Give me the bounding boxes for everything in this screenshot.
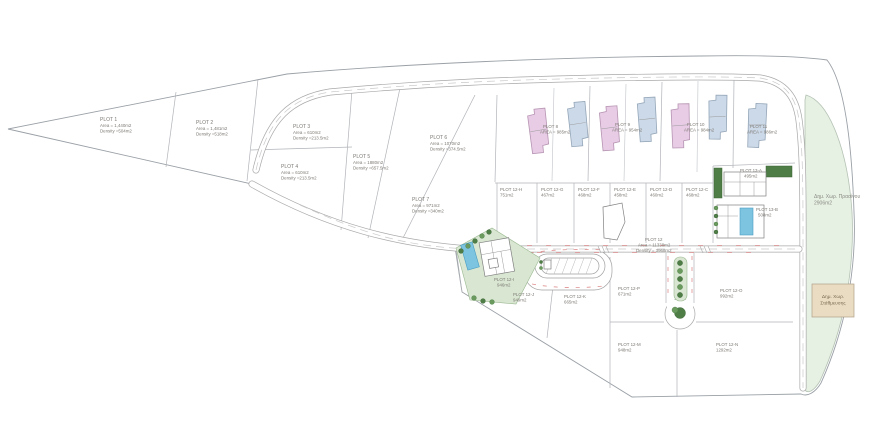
plot2-area: Area = 1,481m2 xyxy=(196,126,228,131)
plot12j-area: 949m2 xyxy=(513,298,527,303)
green-space-label-line1: Δημ. Χωρ. Πρασίνου xyxy=(814,194,860,200)
plot12k-area: 665m2 xyxy=(564,300,578,305)
plot12f-name: PLOT 12-F xyxy=(578,187,600,192)
plot12g-name: PLOT 12-G xyxy=(541,187,564,192)
plot12n-area: 1292m2 xyxy=(716,348,732,353)
plot12-area: Area = 11338m2 xyxy=(638,243,671,248)
plot12h-area: 751m2 xyxy=(500,193,514,198)
plot4-density: Density =213.5m2 xyxy=(281,176,317,181)
plot9-name: PLOT 9 xyxy=(615,122,631,127)
public-parking-box xyxy=(812,284,854,317)
plot1-area: Area = 1,440m2 xyxy=(100,123,132,128)
plot8-area: AREA = 985m2 xyxy=(540,130,571,135)
plot12-density: Density = 3968m2 xyxy=(636,248,672,253)
plot12m-area: 948m2 xyxy=(618,348,632,353)
plot12-name: PLOT 12 xyxy=(645,237,663,242)
plot13b-name: PLOT 13-B xyxy=(756,207,778,212)
plot10-area: AREA = 984m2 xyxy=(684,128,715,133)
plot12p-name: PLOT 12-P xyxy=(618,286,640,291)
plot12c-name: PLOT 12-C xyxy=(686,187,708,192)
plot6-area: Area = 1070m2 xyxy=(430,141,461,146)
plot12h-name: PLOT 12-H xyxy=(500,187,522,192)
plot13b-pool xyxy=(740,208,753,235)
plot9-area: AREA = 954m2 xyxy=(612,128,643,133)
plot13a-name: PLOT 13-A xyxy=(740,168,762,173)
plot12c-area: 468m2 xyxy=(686,193,700,198)
plot12p-area: 671m2 xyxy=(618,292,632,297)
plot12m-name: PLOT 12-M xyxy=(618,342,641,347)
plot5-density: Density =657.5m2 xyxy=(353,166,389,171)
plot12d-area: 460m2 xyxy=(650,193,664,198)
plot13a-area: 495m2 xyxy=(744,174,758,179)
plot12f-area: 468m2 xyxy=(578,193,592,198)
site-plan-drawing: PLOT 1 Area = 1,440m2 Density =504m2 PLO… xyxy=(0,0,890,440)
plot12n-name: PLOT 12-N xyxy=(716,342,738,347)
hedge-left xyxy=(714,168,722,198)
plot6-density: Density =374.5m2 xyxy=(430,147,466,152)
plot12e-area: 458m2 xyxy=(614,193,628,198)
plot11-area: AREA = 986m2 xyxy=(747,130,778,135)
plot12e-name: PLOT 12-E xyxy=(614,187,636,192)
plot11-name: PLOT 11 xyxy=(750,124,768,129)
plot12k-name: PLOT 12-K xyxy=(564,294,586,299)
plot7-density: Density =340m2 xyxy=(412,209,444,214)
plot13b-area: 508m2 xyxy=(758,213,772,218)
plot12i-name: PLOT 12-I xyxy=(494,277,514,282)
plot12o-area: 992m2 xyxy=(720,294,734,299)
plot2-density: Density =518m2 xyxy=(196,132,228,137)
green-space-label-line2: 2906m2 xyxy=(814,201,832,207)
plot12i-area: 946m2 xyxy=(497,283,511,288)
parking-label-line1: Δημ. Χωρ. xyxy=(822,294,844,300)
plot12o-name: PLOT 12-O xyxy=(720,288,743,293)
plot12g-area: 467m2 xyxy=(541,193,555,198)
plot12j-name: PLOT 12-J xyxy=(513,292,534,297)
plot3-density: Density =213.5m2 xyxy=(293,136,329,141)
hedge-right xyxy=(766,166,792,177)
plot10-name: PLOT 10 xyxy=(687,122,705,127)
plot5-area: Area = 1880m2 xyxy=(353,160,384,165)
plot4-area: Area = 610m2 xyxy=(281,170,309,175)
parking-label-line2: Στάθμευσης xyxy=(820,300,846,307)
plot8-name: PLOT 8 xyxy=(543,124,559,129)
plot7-area: Area = 971m2 xyxy=(412,203,440,208)
plot1-density: Density =504m2 xyxy=(100,129,132,134)
plot3-area: Area = 610m2 xyxy=(293,130,321,135)
plot12d-name: PLOT 12-D xyxy=(650,187,672,192)
